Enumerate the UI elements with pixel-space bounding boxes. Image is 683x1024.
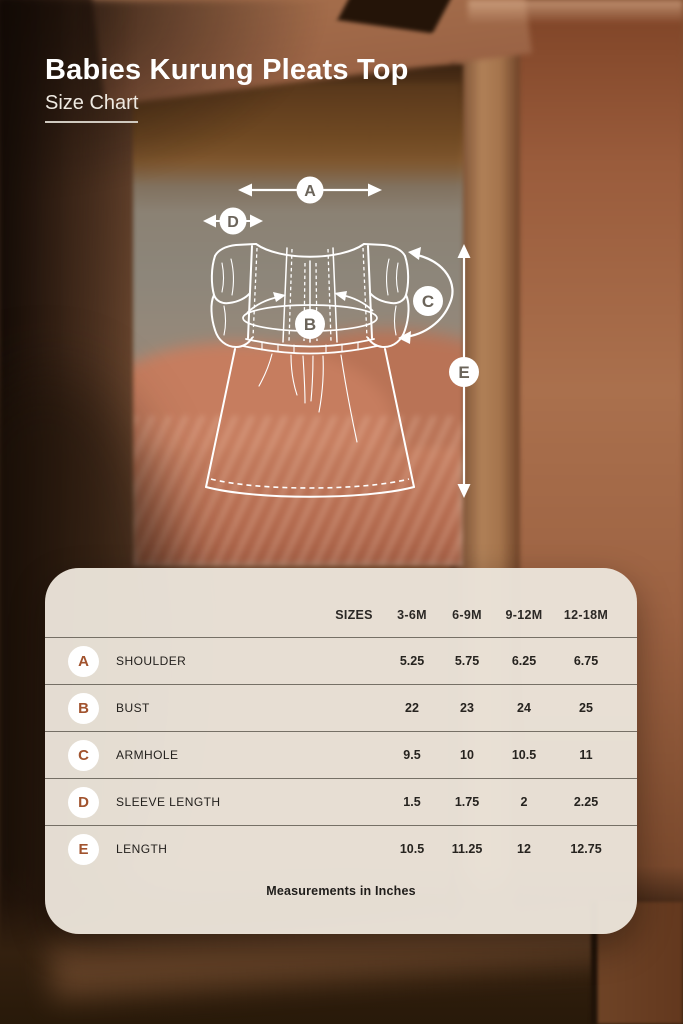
subtitle-underline (45, 121, 138, 123)
column-header-6-9m: 6-9M (439, 608, 495, 622)
measure-value: 25 (553, 701, 619, 715)
measure-value: 2 (495, 795, 553, 809)
measure-value: 1.75 (439, 795, 495, 809)
table-row-bust: B BUST 22 23 24 25 (45, 684, 637, 731)
table-row-shoulder: A SHOULDER 5.25 5.75 6.25 6.75 (45, 637, 637, 684)
size-table-panel: SIZES 3-6M 6-9M 9-12M 12-18M A SHOULDER … (45, 568, 637, 934)
measure-value: 6.25 (495, 654, 553, 668)
measure-value: 5.25 (385, 654, 439, 668)
measure-letter-badge: A (68, 646, 99, 677)
measure-letter-badge: D (68, 787, 99, 818)
measure-letter-badge: C (68, 740, 99, 771)
measure-value: 24 (495, 701, 553, 715)
measure-value: 12 (495, 842, 553, 856)
column-header-3-6m: 3-6M (385, 608, 439, 622)
measure-label: SHOULDER (116, 654, 323, 668)
marker-b: B (304, 315, 316, 334)
measure-value: 6.75 (553, 654, 619, 668)
marker-badges: A D B C E (220, 177, 480, 388)
marker-c: C (422, 292, 434, 311)
measure-letter-badge: E (68, 834, 99, 865)
size-chart-graphic: Babies Kurung Pleats Top Size Chart (0, 0, 683, 1024)
marker-a: A (304, 183, 316, 200)
measure-value: 5.75 (439, 654, 495, 668)
column-header-9-12m: 9-12M (495, 608, 553, 622)
table-header-row: SIZES 3-6M 6-9M 9-12M 12-18M (45, 568, 637, 637)
measure-value: 10 (439, 748, 495, 762)
measure-label: LENGTH (116, 842, 323, 856)
garment-outline (206, 244, 414, 497)
marker-d: D (227, 214, 239, 231)
garment-measurement-diagram: A D B C E (180, 150, 490, 520)
measure-value: 12.75 (553, 842, 619, 856)
page-title: Babies Kurung Pleats Top (45, 55, 409, 87)
measure-value: 10.5 (495, 748, 553, 762)
measure-label: ARMHOLE (116, 748, 323, 762)
page-subtitle: Size Chart (45, 93, 409, 114)
measure-value: 9.5 (385, 748, 439, 762)
table-row-armhole: C ARMHOLE 9.5 10 10.5 11 (45, 731, 637, 778)
measure-value: 22 (385, 701, 439, 715)
measure-value: 11 (553, 748, 619, 762)
column-header-12-18m: 12-18M (553, 608, 619, 622)
title-block: Babies Kurung Pleats Top Size Chart (45, 55, 409, 123)
measure-label: BUST (116, 701, 323, 715)
measure-value: 1.5 (385, 795, 439, 809)
measure-value: 11.25 (439, 842, 495, 856)
table-row-length: E LENGTH 10.5 11.25 12 12.75 (45, 825, 637, 872)
measure-value: 2.25 (553, 795, 619, 809)
measure-value: 23 (439, 701, 495, 715)
marker-e: E (458, 363, 469, 382)
units-footnote: Measurements in Inches (45, 884, 637, 898)
measure-value: 10.5 (385, 842, 439, 856)
measure-label: SLEEVE LENGTH (116, 795, 323, 809)
column-header-sizes: SIZES (323, 608, 385, 622)
measure-letter-badge: B (68, 693, 99, 724)
table-row-sleeve-length: D SLEEVE LENGTH 1.5 1.75 2 2.25 (45, 778, 637, 825)
